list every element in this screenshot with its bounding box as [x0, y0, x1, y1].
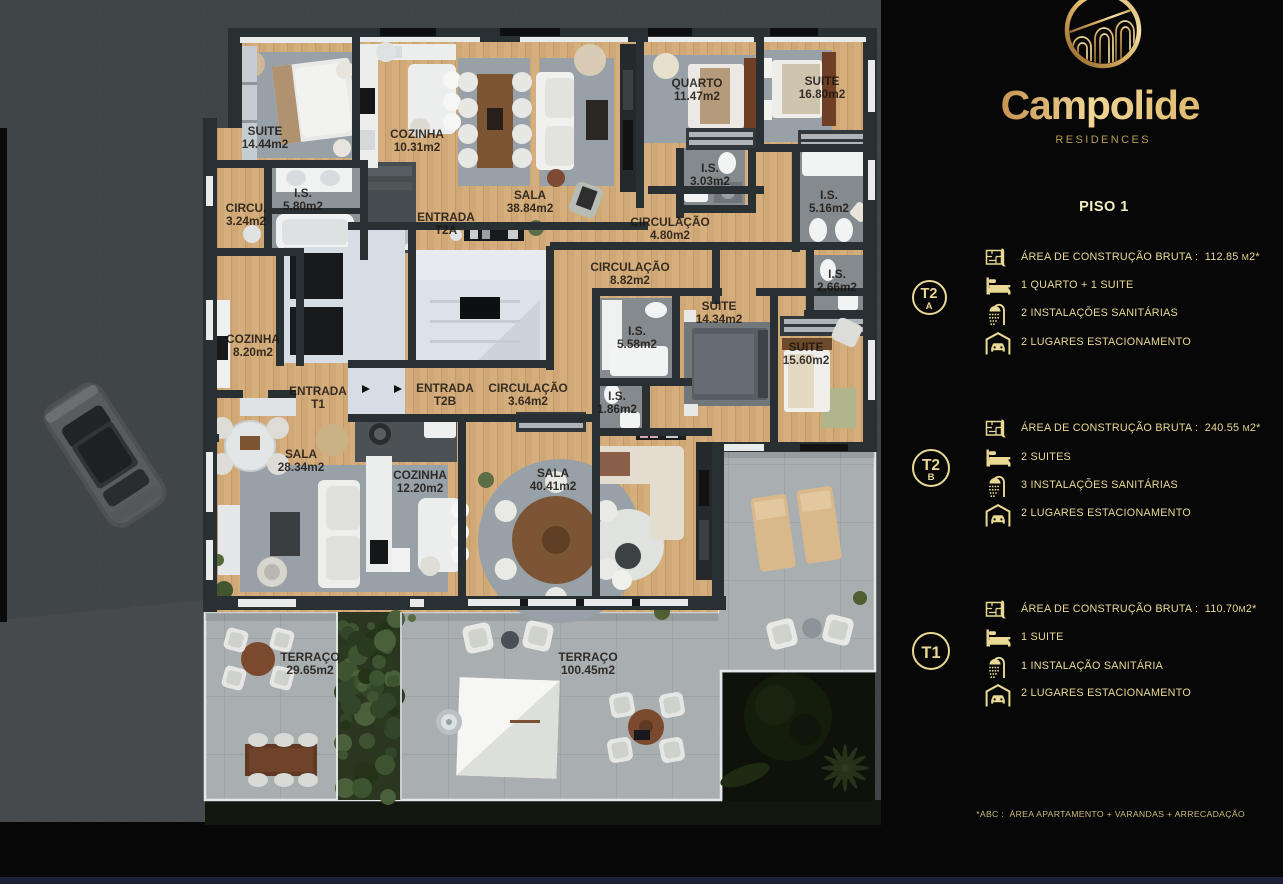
svg-text:14.34m2: 14.34m2 [696, 312, 743, 326]
svg-text:ENTRADA: ENTRADA [417, 210, 475, 224]
svg-text:SUITE: SUITE [805, 74, 840, 88]
svg-text:8.82m2: 8.82m2 [610, 273, 650, 287]
svg-text:ENTRADA: ENTRADA [289, 384, 347, 398]
svg-text:SUITE: SUITE [789, 340, 824, 354]
svg-text:38.84m2: 38.84m2 [507, 201, 554, 215]
svg-text:3.03m2: 3.03m2 [690, 174, 730, 188]
svg-text:3.24m2: 3.24m2 [226, 214, 266, 228]
svg-text:I.S.: I.S. [294, 186, 312, 200]
svg-text:16.80m2: 16.80m2 [799, 87, 846, 101]
svg-text:TERRAÇO: TERRAÇO [558, 650, 617, 664]
svg-text:29.65m2: 29.65m2 [286, 663, 334, 677]
svg-text:I.S.: I.S. [820, 188, 838, 202]
svg-text:10.31m2: 10.31m2 [394, 140, 441, 154]
svg-text:15.60m2: 15.60m2 [783, 353, 830, 367]
svg-text:SALA: SALA [514, 188, 547, 202]
svg-text:100.45m2: 100.45m2 [561, 663, 615, 677]
svg-text:28.34m2: 28.34m2 [278, 460, 325, 474]
svg-text:5.16m2: 5.16m2 [809, 201, 849, 215]
svg-text:CIRCULAÇÃO: CIRCULAÇÃO [488, 381, 567, 395]
svg-text:COZINHA: COZINHA [390, 127, 444, 141]
svg-text:COZINHA: COZINHA [393, 468, 447, 482]
svg-text:I.S.: I.S. [608, 389, 626, 403]
svg-text:5.80m2: 5.80m2 [283, 199, 323, 213]
svg-text:CIRCU.: CIRCU. [226, 201, 267, 215]
svg-text:2.66m2: 2.66m2 [817, 280, 857, 294]
svg-text:14.44m2: 14.44m2 [242, 137, 289, 151]
svg-text:SALA: SALA [285, 447, 318, 461]
svg-text:T2B: T2B [434, 394, 456, 408]
svg-text:5.58m2: 5.58m2 [617, 337, 657, 351]
svg-text:SALA: SALA [537, 466, 570, 480]
svg-text:I.S.: I.S. [828, 267, 846, 281]
svg-text:40.41m2: 40.41m2 [530, 479, 577, 493]
svg-text:T2A: T2A [435, 223, 458, 237]
svg-text:T1: T1 [311, 397, 325, 411]
svg-text:12.20m2: 12.20m2 [397, 481, 444, 495]
svg-text:3.64m2: 3.64m2 [508, 394, 548, 408]
svg-text:SUITE: SUITE [248, 124, 283, 138]
svg-text:8.20m2: 8.20m2 [233, 345, 273, 359]
svg-text:ENTRADA: ENTRADA [416, 381, 474, 395]
svg-text:4.80m2: 4.80m2 [650, 228, 690, 242]
svg-text:SUITE: SUITE [702, 299, 737, 313]
svg-text:I.S.: I.S. [628, 324, 646, 338]
svg-text:I.S.: I.S. [701, 161, 719, 175]
svg-text:COZINHA: COZINHA [226, 332, 280, 346]
svg-text:CIRCULAÇÃO: CIRCULAÇÃO [590, 260, 669, 274]
svg-text:CIRCULAÇÃO: CIRCULAÇÃO [630, 215, 709, 229]
svg-text:11.47m2: 11.47m2 [674, 89, 720, 103]
svg-text:QUARTO: QUARTO [672, 76, 723, 90]
svg-text:1.86m2: 1.86m2 [597, 402, 637, 416]
svg-text:TERRAÇO: TERRAÇO [280, 650, 339, 664]
